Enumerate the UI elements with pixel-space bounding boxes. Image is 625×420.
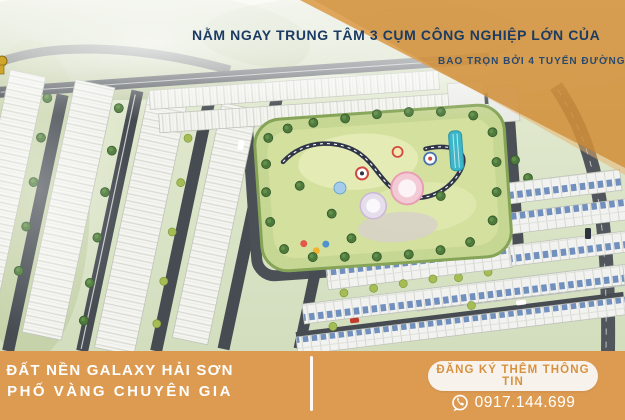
central-park [253,101,513,273]
phone-contact: 0917.144.699 [428,393,598,413]
headline: NẰM NGAY TRUNG TÂM 3 CỤM CÔNG NGHIỆP LỚN… [192,27,600,43]
phone-circle-icon [451,394,469,412]
project-title-line2: PHỐ VÀNG CHUYÊN GIA [0,381,240,403]
register-button[interactable]: ĐĂNG KÝ THÊM THÔNG TIN [428,361,598,391]
project-title: ĐẤT NỀN GALAXY HẢI SƠN PHỐ VÀNG CHUYÊN G… [0,360,240,403]
subheadline: BAO TRỌN BỞI 4 TUYẾN ĐƯỜNG [438,56,625,67]
phone-number[interactable]: 0917.144.699 [475,394,576,412]
vertical-divider [310,356,313,411]
footer-bar: ĐẤT NỀN GALAXY HẢI SƠN PHỐ VÀNG CHUYÊN G… [0,351,625,420]
ad-banner: NẰM NGAY TRUNG TÂM 3 CỤM CÔNG NGHIỆP LỚN… [0,0,625,420]
project-title-line1: ĐẤT NỀN GALAXY HẢI SƠN [0,360,240,381]
aerial-render-illustration [0,0,625,352]
